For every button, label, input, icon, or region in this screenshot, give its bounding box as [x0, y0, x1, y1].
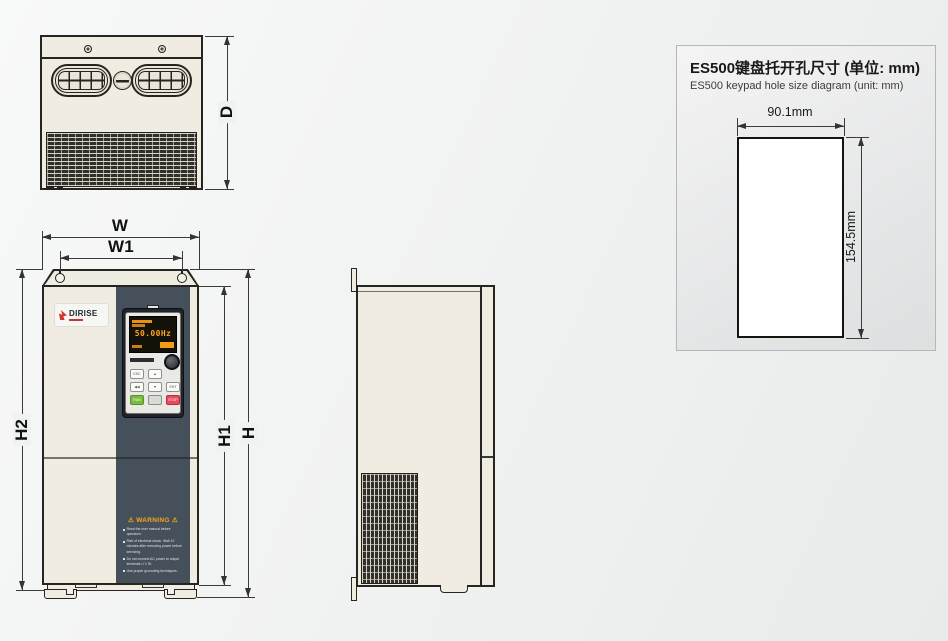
- warning-title: ⚠ WARNING ⚠: [116, 516, 190, 524]
- base-notch: [142, 584, 164, 588]
- keypad-button-stop[interactable]: STOP: [166, 395, 180, 405]
- brand-logo-text: DIRISE: [69, 310, 97, 318]
- hole-width-label: 90.1mm: [767, 105, 812, 119]
- dim-line-w1: [60, 258, 182, 259]
- side-strip-divider: [482, 456, 493, 458]
- warning-line: Read the user manual before operation.: [123, 527, 185, 538]
- button-label: RUN: [133, 398, 141, 402]
- vent-ring: [135, 68, 188, 93]
- dim-label-h2: H2: [13, 414, 31, 446]
- arrowhead-icon: [224, 180, 230, 189]
- foot-mark: [57, 186, 63, 190]
- bullet-icon: [123, 570, 125, 572]
- side-front-strip: [480, 285, 495, 587]
- warning-line: Do not connect AC power to output termin…: [123, 557, 185, 568]
- arrowhead-icon: [221, 576, 227, 585]
- brand-logo-plate: DIRISE: [55, 304, 108, 326]
- arrowhead-icon: [60, 255, 69, 261]
- side-top-cover-line: [358, 291, 480, 292]
- extension-line: [205, 189, 234, 190]
- dimension-diagram-canvas: D DIRISE 50.00Hz ESC ▲ ◀◀ ▼ ENT RUN STOP…: [0, 0, 948, 641]
- brand-logo-tagline-bar: [69, 319, 83, 321]
- brand-logo-icon: [59, 310, 67, 320]
- dim-label-h: H: [240, 422, 258, 444]
- dim-label-w: W: [112, 216, 128, 236]
- arrowhead-icon: [245, 588, 251, 597]
- foot-mark: [180, 186, 186, 190]
- arrowhead-icon: [245, 269, 251, 278]
- button-label: ▲: [153, 372, 156, 376]
- keypad-button-down[interactable]: ▼: [148, 382, 162, 392]
- bullet-icon: [123, 558, 125, 560]
- dim-line-hole-height: [861, 137, 862, 338]
- display-frequency-value: 50.00Hz: [129, 329, 177, 338]
- vent-ring: [55, 68, 108, 93]
- vent-grommet-right: [131, 64, 192, 97]
- status-led-bar: [130, 358, 154, 362]
- warning-text: Use proper grounding techniques.: [127, 569, 178, 574]
- arrowhead-icon: [173, 255, 182, 261]
- keypad-button-mode[interactable]: [148, 395, 162, 405]
- keypad-button-esc[interactable]: ESC: [130, 369, 144, 379]
- arrowhead-icon: [19, 581, 25, 590]
- hole-height-label: 154.5mm: [844, 211, 858, 263]
- arrowhead-icon: [858, 137, 864, 146]
- arrowhead-icon: [190, 234, 199, 240]
- vent-grommet-left: [51, 64, 112, 97]
- extension-line: [205, 36, 234, 37]
- keypad-button-enter[interactable]: ENT: [166, 382, 180, 392]
- body-seam-line: [44, 457, 197, 459]
- keyhole-left: [55, 273, 65, 283]
- button-label: STOP: [168, 398, 177, 402]
- button-label: ENT: [170, 385, 177, 389]
- side-foot-tab: [440, 585, 468, 593]
- dim-line-hole-width: [737, 126, 844, 127]
- warning-line: Risk of electrical shock. Wait 10 minute…: [123, 539, 185, 555]
- arrowhead-icon: [19, 269, 25, 278]
- warning-line: Use proper grounding techniques.: [123, 569, 185, 574]
- arrowhead-icon: [835, 123, 844, 129]
- base-notch: [75, 584, 97, 588]
- warning-text: Risk of electrical shock. Wait 10 minute…: [127, 539, 185, 555]
- foot-left-slot: [66, 589, 74, 595]
- heatsink-grille-top-view: [46, 132, 197, 187]
- arrowhead-icon: [42, 234, 51, 240]
- bullet-icon: [123, 529, 125, 531]
- button-label: ESC: [133, 372, 140, 376]
- keypad-button-run[interactable]: RUN: [130, 395, 144, 405]
- keypad-button-up[interactable]: ▲: [148, 369, 162, 379]
- keyhole-right: [177, 273, 187, 283]
- foot-right-slot: [167, 589, 175, 595]
- warning-text-block: Read the user manual before operation. R…: [123, 527, 185, 576]
- arrowhead-icon: [221, 286, 227, 295]
- jog-knob[interactable]: [164, 354, 180, 370]
- mounting-bracket-face: [44, 271, 197, 287]
- vent-grid: [138, 71, 185, 90]
- display-text-bar: [132, 324, 145, 327]
- screw-icon: [158, 45, 166, 53]
- foot-mark: [189, 186, 197, 190]
- foot-mark: [46, 186, 54, 190]
- panel-title-zh: ES500键盘托开孔尺寸 (单位: mm): [690, 57, 920, 78]
- heatsink-grille-side-view: [361, 473, 418, 584]
- cable-gland: [113, 71, 132, 90]
- dim-label-w1: W1: [108, 237, 134, 257]
- top-view-strip-line: [42, 57, 201, 59]
- vent-grid: [58, 71, 105, 90]
- bullet-icon: [123, 541, 125, 543]
- display-text-bar: [132, 320, 152, 323]
- warning-text: Do not connect AC power to output termin…: [127, 557, 185, 568]
- display-highlight-block: [160, 342, 174, 348]
- arrowhead-icon: [224, 36, 230, 45]
- screw-icon: [84, 45, 92, 53]
- dim-label-d: D: [218, 101, 236, 123]
- button-label: ▼: [153, 385, 156, 389]
- panel-title-en: ES500 keypad hole size diagram (unit: mm…: [690, 80, 903, 92]
- warning-text: Read the user manual before operation.: [127, 527, 185, 538]
- dim-label-h1: H1: [216, 420, 234, 452]
- button-label: ◀◀: [134, 385, 139, 389]
- arrowhead-icon: [858, 329, 864, 338]
- arrowhead-icon: [737, 123, 746, 129]
- keypad-hole-rect: [737, 137, 844, 338]
- keypad-button-shift[interactable]: ◀◀: [130, 382, 144, 392]
- display-text-bar: [132, 345, 142, 348]
